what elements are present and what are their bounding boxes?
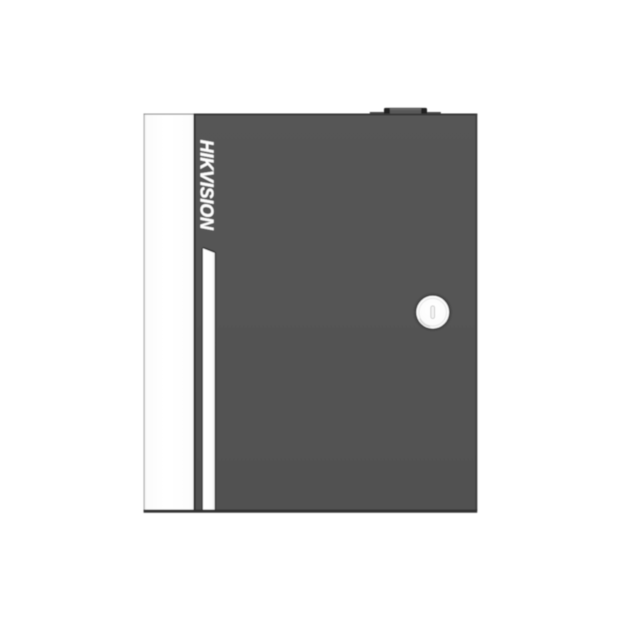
svg-text:HIKVISION: HIKVISION — [196, 140, 217, 231]
